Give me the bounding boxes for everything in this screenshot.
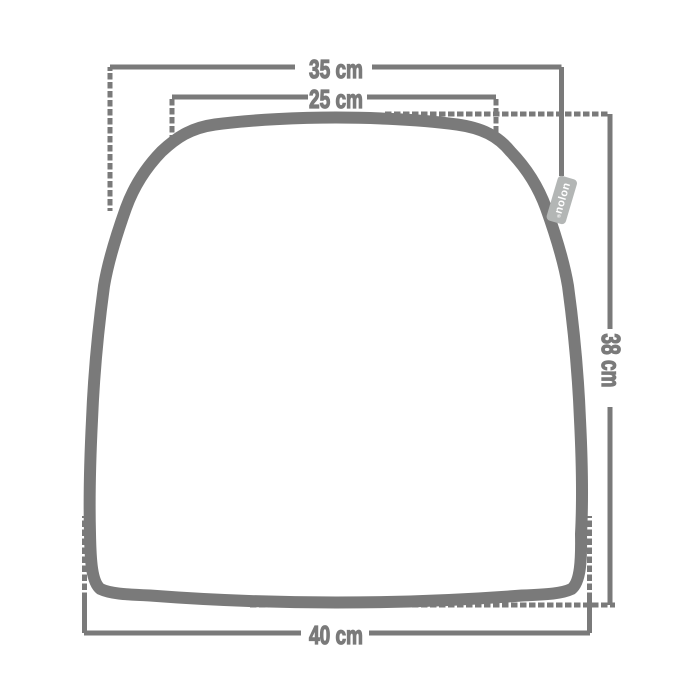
svg-text:40 cm: 40 cm — [309, 620, 363, 650]
svg-text:38 cm: 38 cm — [596, 334, 626, 388]
svg-text:35 cm: 35 cm — [309, 54, 363, 84]
svg-text:25 cm: 25 cm — [309, 84, 363, 114]
